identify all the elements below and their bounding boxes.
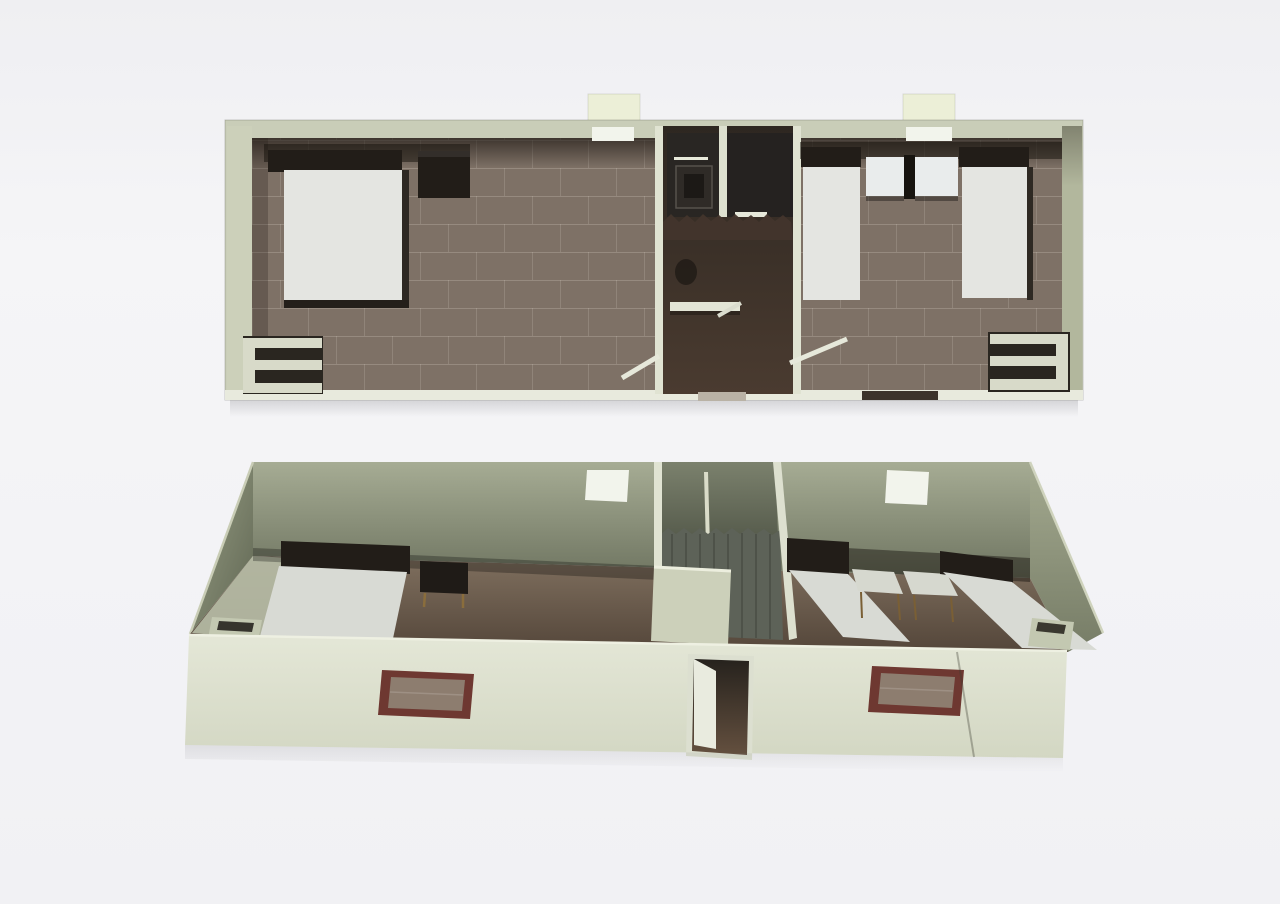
bedside-table xyxy=(915,157,958,196)
front-wall xyxy=(185,635,1067,760)
bed-headboard xyxy=(268,150,402,172)
shelf-board xyxy=(243,338,322,348)
ceiling-light-right xyxy=(906,127,952,141)
shading xyxy=(1062,126,1082,186)
towel-rail xyxy=(674,157,708,160)
back-wall-window-right xyxy=(885,470,929,505)
render-canvas xyxy=(0,0,1280,904)
skylight-left xyxy=(588,94,640,122)
single-bed-headboard xyxy=(801,147,861,167)
washer-door xyxy=(684,174,704,198)
persp-bathroom xyxy=(651,462,797,645)
skylight-right xyxy=(903,94,955,122)
toilet xyxy=(675,259,697,285)
single-bed-headboard xyxy=(959,147,1029,167)
shading xyxy=(418,151,470,157)
waste-bin xyxy=(1028,618,1074,650)
table-leg xyxy=(861,592,862,618)
bathroom-half-wall xyxy=(651,567,731,645)
shading xyxy=(915,196,958,201)
scanned-page xyxy=(0,0,1280,904)
shelf-board xyxy=(243,360,322,370)
ceiling-light-left xyxy=(592,127,634,141)
perspective-view xyxy=(185,462,1103,772)
dark-threshold xyxy=(862,391,938,400)
entry-threshold xyxy=(698,392,746,401)
back-wall-window-left xyxy=(585,470,629,502)
shelf-board xyxy=(990,379,1068,390)
wall-cabinet xyxy=(418,151,470,198)
single-bed-mattress xyxy=(803,167,860,300)
bed-frame-foot xyxy=(284,300,409,308)
top-down-view xyxy=(225,94,1083,417)
shelf-board xyxy=(990,334,1068,344)
unit-shadow xyxy=(230,399,1078,417)
bathroom-wall-right xyxy=(793,126,801,394)
bed-mattress xyxy=(284,170,404,302)
nightstand xyxy=(420,561,468,594)
bathroom-wall-left xyxy=(655,126,663,394)
bed-frame-edge xyxy=(402,170,409,308)
bedside-table xyxy=(866,157,904,196)
table-leg xyxy=(424,593,425,607)
shading xyxy=(866,196,904,201)
entrance-door xyxy=(694,659,716,749)
single-bed-mattress xyxy=(962,167,1027,298)
shading xyxy=(904,155,915,199)
stall-divider xyxy=(719,126,727,217)
shelf-board xyxy=(243,383,322,393)
shelf-unit-right xyxy=(988,332,1070,392)
shelf-board xyxy=(990,356,1068,366)
bed-frame-edge xyxy=(1027,167,1033,300)
shelf-unit-left xyxy=(243,336,323,394)
front-wall-band xyxy=(225,390,1083,400)
shower-stall-right xyxy=(726,133,793,217)
